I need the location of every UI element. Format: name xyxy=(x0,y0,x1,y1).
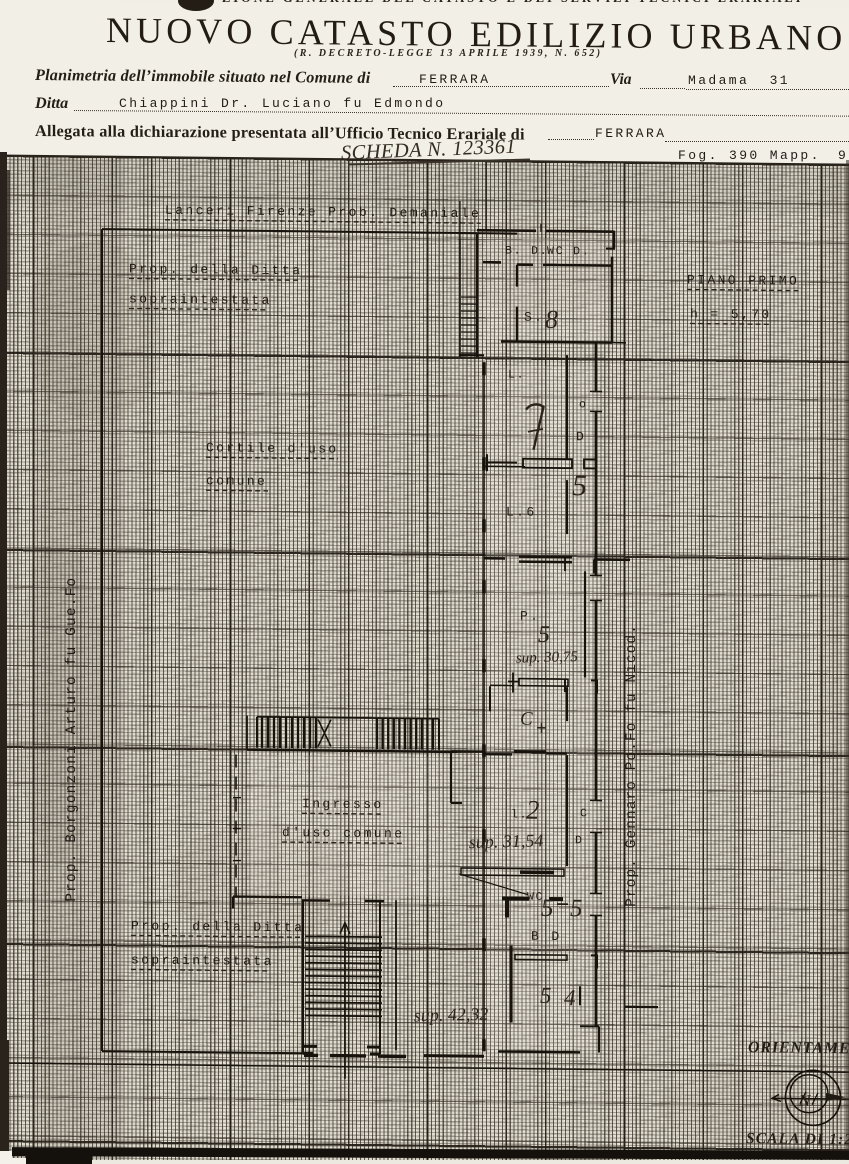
svg-text:PIANO PRIMO: PIANO PRIMO xyxy=(687,272,799,288)
svg-text:8: 8 xyxy=(545,305,558,334)
svg-text:Prop. Borgonzoni Arturo fu Gue: Prop. Borgonzoni Arturo fu Gue.Fo xyxy=(64,577,80,902)
svg-text:B. D.: B. D. xyxy=(505,244,549,257)
svg-text:5: 5 xyxy=(538,622,550,648)
svg-text:C: C xyxy=(520,709,533,730)
svg-text:D: D xyxy=(576,429,586,444)
svg-text:C: C xyxy=(580,807,589,820)
svg-text:N: N xyxy=(798,1093,812,1110)
svg-text:B D: B D xyxy=(531,929,562,944)
svg-text:Cortile d'uso: Cortile d'uso xyxy=(206,440,339,456)
svg-text:o: o xyxy=(579,398,588,411)
svg-text:sopraintestata: sopraintestata xyxy=(129,291,272,308)
svg-text:SCALA DI 1:20: SCALA DI 1:20 xyxy=(746,1130,849,1148)
svg-text:Ingresso: Ingresso xyxy=(302,796,384,812)
svg-text:4: 4 xyxy=(564,985,575,1010)
svg-text:Prop. della Ditta: Prop. della Ditta xyxy=(129,261,302,278)
svg-text:5: 5 xyxy=(540,983,551,1008)
svg-text:5: 5 xyxy=(572,469,587,502)
svg-text:sup. 42,32: sup. 42,32 xyxy=(413,1004,488,1026)
svg-text:L.6: L.6 xyxy=(506,504,537,519)
svg-text:comune: comune xyxy=(206,473,267,489)
svg-text:ORIENTAMENTO: ORIENTAMENTO xyxy=(748,1039,849,1057)
svg-text:l.: l. xyxy=(511,809,528,822)
svg-text:Prop. della Ditta: Prop. della Ditta xyxy=(131,918,304,935)
svg-text:WC D.: WC D. xyxy=(547,245,591,258)
svg-text:d'uso comune: d'uso comune xyxy=(282,825,404,841)
svg-text:sup. 31,54: sup. 31,54 xyxy=(468,830,543,852)
svg-text:sopraintestata: sopraintestata xyxy=(131,952,274,969)
svg-text:S.: S. xyxy=(524,310,544,325)
svg-text:h = 5,70: h = 5,70 xyxy=(690,306,772,322)
svg-text:L.: L. xyxy=(508,368,525,381)
svg-text:5: 5 xyxy=(541,895,553,922)
svg-text:sup. 30,75: sup. 30,75 xyxy=(516,649,579,667)
svg-text:D: D xyxy=(575,834,584,847)
svg-text:5: 5 xyxy=(570,895,582,922)
svg-text:Prop. Gennaro Po.Fo fu Nicod.: Prop. Gennaro Po.Fo fu Nicod. xyxy=(624,624,640,907)
